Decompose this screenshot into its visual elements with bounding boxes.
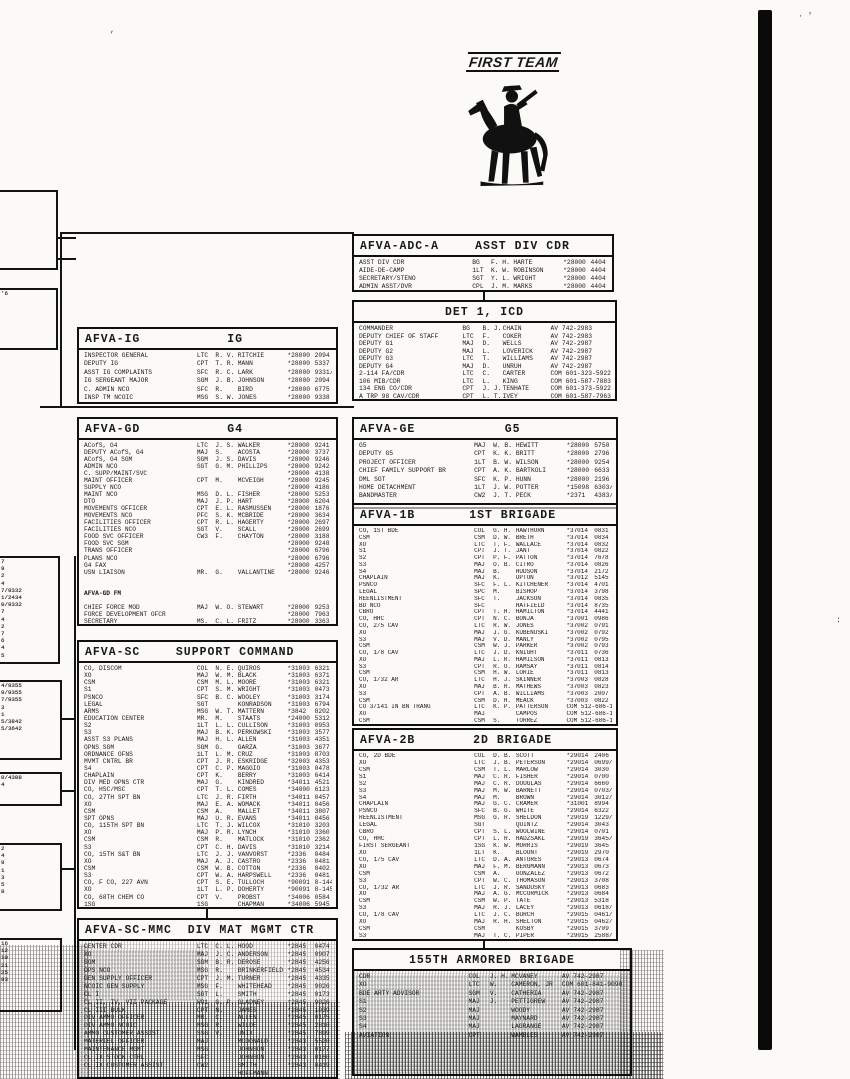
roster-row: XO1LTL. P.DOHERTY*900918-1451 — [84, 886, 332, 893]
roster-cell: JANT — [516, 548, 567, 555]
roster-cell: CITRO — [516, 562, 567, 569]
roster-cell: 4404 — [591, 259, 608, 267]
roster-row: ARMSMSGW. T.MATTERN*38428202 — [84, 708, 332, 715]
roster-cell: AV 742-2987 — [551, 340, 611, 348]
roster-cell: AV 742-2987 — [562, 1015, 626, 1023]
fragment-text-line: 7 — [0, 608, 58, 615]
roster-cell: MAJ — [197, 449, 216, 456]
roster-cell: H. J. — [493, 677, 516, 684]
roster-cell: 2697 — [315, 519, 332, 526]
roster-cell: XO — [84, 858, 197, 865]
roster-cell: MR. — [197, 569, 216, 576]
roster-cell: MEACK — [516, 698, 567, 705]
roster-cell: 3030 — [594, 767, 612, 774]
roster-cell: 134 ENG CO/CDR — [359, 385, 462, 393]
roster-cell: CO, 1ST BDE — [359, 528, 474, 535]
roster-cell: CSM — [359, 898, 474, 905]
roster-cell: PLANS NCO — [84, 555, 197, 562]
roster-cell — [197, 1070, 216, 1078]
roster-row: S3CPTW. C.THOMASON*290133708 — [359, 878, 612, 885]
roster-cell: R. — [215, 967, 237, 975]
roster-row: NCOIC GEN SUPPLYMSGF.WHITEHEAD*28459026 — [84, 983, 332, 991]
roster-cell: PSNCO — [84, 694, 197, 701]
roster-cell: CSM — [84, 836, 197, 843]
cutoff-box-fragment — [0, 190, 58, 270]
roster-cell: *37014 — [566, 555, 594, 562]
roster-cell: *29013 — [566, 885, 594, 892]
roster-cell: XO — [359, 542, 474, 549]
roster-cell: W. — [490, 981, 511, 989]
roster-cell: 2-114 FA/CDR — [359, 370, 462, 378]
roster-row: S1MAJC. R.FISHER*290140700 — [359, 774, 612, 781]
roster-cell: J. G. — [493, 630, 516, 637]
roster-cell: HOME DETACHMENT — [359, 484, 474, 492]
roster-cell: COM 601-841-9090 — [562, 981, 626, 989]
roster-cell: DEPUTY IG — [84, 360, 197, 368]
roster-cell: L. L. — [215, 722, 237, 729]
roster-cell: FIRTH — [238, 794, 288, 801]
roster-cell: CPT — [197, 505, 216, 512]
roster-cell — [493, 603, 516, 610]
roster-cell: MOVEMENTS OFFICER — [84, 505, 197, 512]
fragment-text-line: 2 — [0, 572, 58, 579]
roster-cell: R. L. — [215, 519, 237, 526]
roster-cell: HAGERTY — [238, 519, 288, 526]
roster-cell: 4404 — [591, 267, 608, 275]
roster-cell: GLADNEY — [238, 999, 288, 1007]
roster-cell: *28000 — [287, 377, 314, 385]
roster-cell: *37014 — [566, 582, 594, 589]
roster-cell: BRITT — [516, 450, 567, 458]
roster-row: CSMCSMR.MATLOCK*310102362 — [84, 836, 332, 843]
box-header: AFVA-IGIG — [79, 329, 336, 350]
roster-cell: WELLS — [503, 340, 551, 348]
roster-cell — [215, 611, 237, 618]
roster-cell: ORDNANCE OFNS — [84, 751, 197, 758]
roster-cell: 0683 — [594, 885, 612, 892]
roster-cell: BDE ARTY ADVISOR — [359, 990, 468, 998]
roster-cell: S4 — [359, 795, 474, 802]
roster-cell: S1 — [359, 998, 468, 1006]
box-roster: CO, DISCOMCOLN. E.QUIROS*310036321XOMAJW… — [79, 663, 336, 908]
roster-cell: *28000 — [287, 569, 314, 576]
roster-cell: CHAPLAIN — [84, 772, 197, 779]
roster-cell: *2843 — [287, 1046, 314, 1054]
roster-cell: 4256 — [315, 959, 332, 967]
roster-cell: *31003 — [287, 736, 314, 743]
roster-cell: S4 — [84, 765, 197, 772]
roster-cell — [215, 555, 237, 562]
roster-cell: XO — [359, 760, 474, 767]
roster-cell: T. H. — [493, 609, 516, 616]
roster-cell: *28000 — [287, 369, 314, 377]
roster-cell: BG — [472, 259, 491, 267]
roster-cell: *29015 — [566, 933, 594, 940]
roster-cell: S3 — [359, 788, 474, 795]
roster-cell: KING — [503, 378, 551, 386]
roster-cell: DIV AMMO NCOIC — [84, 1022, 197, 1030]
roster-row: OPS NCOMSGR.BRINKERFIELD*28454534 — [84, 967, 332, 975]
roster-cell: MAJ — [462, 363, 482, 371]
roster-cell: CPT — [197, 772, 216, 779]
roster-cell: 5750 — [594, 442, 612, 450]
roster-cell: 1LT — [197, 886, 216, 893]
roster-cell: *28000 — [287, 456, 314, 463]
roster-cell: QUINTZ — [516, 822, 567, 829]
roster-cell: 0673 — [594, 864, 612, 871]
roster-cell: D. — [482, 363, 502, 371]
roster-cell: 7678 — [594, 555, 612, 562]
box-title: G4 — [140, 423, 330, 436]
roster-cell: SHELDON — [516, 815, 567, 822]
cutoff-box-fragment: 161210212593 — [0, 938, 62, 1012]
roster-cell: C. — [215, 1014, 237, 1022]
roster-cell: J. S. — [215, 442, 237, 449]
roster-cell: XO — [359, 919, 474, 926]
roster-cell: 0814 — [594, 664, 612, 671]
roster-cell: 4383/6106 — [594, 492, 612, 500]
roster-cell: J. M. — [215, 975, 237, 983]
roster-cell: S1 — [84, 686, 197, 693]
roster-cell: WRIGHT — [238, 686, 288, 693]
roster-cell: V. — [215, 1030, 237, 1038]
roster-cell: C. H. — [215, 844, 237, 851]
roster-cell: CSM — [359, 718, 474, 725]
roster-cell: WAMBLES — [511, 1032, 562, 1040]
roster-row: FACILITIES OFFICERCPTR. L.HAGERTY*280002… — [84, 519, 332, 526]
roster-cell: 3798 — [594, 589, 612, 596]
roster-row: S4CPTC. P.MAGGIO*310030478 — [84, 765, 332, 772]
roster-cell: MAJ — [197, 829, 216, 836]
roster-cell: 0813 — [594, 657, 612, 664]
roster-cell: AV 742-2987 — [562, 998, 626, 1006]
roster-cell: 9026 — [315, 999, 332, 1007]
roster-cell: EDUCATION CENTER — [84, 715, 197, 722]
roster-cell: *29014 — [566, 753, 594, 760]
roster-subheader: AFVA-GD FM — [84, 590, 332, 597]
roster-row: CSMCSMW. B.COTTON*23360402 — [84, 865, 332, 872]
roster-cell: STAATS — [238, 715, 288, 722]
roster-cell: CW2 — [474, 492, 493, 500]
org-box-afva-1b: AFVA-1B1ST BRIGADECO, 1ST BDECOLG. H.HAW… — [352, 503, 618, 726]
roster-cell: CPT — [197, 894, 216, 901]
roster-cell: 3709 — [594, 926, 612, 933]
roster-cell: 0618/0620 — [594, 905, 612, 912]
roster-cell: 3677 — [315, 744, 332, 751]
roster-cell: CO, HHC — [359, 836, 474, 843]
roster-row: XOMAJP. R.LYNCH*310103360 — [84, 829, 332, 836]
roster-cell — [197, 555, 216, 562]
org-box-afva-ge: AFVA-GEG5G5MAJW. B.HEWITT*280005750DEPUT… — [352, 417, 618, 509]
roster-cell: TURNER — [238, 975, 288, 983]
roster-cell: POTTER — [516, 484, 567, 492]
roster-cell: R. W. — [493, 623, 516, 630]
roster-cell: MAJ — [474, 933, 493, 940]
roster-cell: 9338 — [315, 394, 332, 402]
roster-row: CO, 115TH SPT BNLTCT. J.WILCOX*310103203 — [84, 822, 332, 829]
roster-cell: DOHERTY — [238, 886, 288, 893]
roster-cell: LTC — [474, 677, 493, 684]
roster-cell: *28000 — [566, 467, 594, 475]
roster-cell: HEWITT — [516, 442, 567, 450]
roster-cell: C. R. — [493, 774, 516, 781]
roster-row: CSMCSMD. H.MEACK*370030822 — [359, 698, 612, 705]
roster-cell: CSM — [197, 836, 216, 843]
roster-cell: CO, 1/5 CAV — [359, 857, 474, 864]
fragment-text-line: 5/3842 — [0, 718, 60, 725]
roster-cell: G. — [215, 569, 237, 576]
roster-cell: 4335 — [315, 975, 332, 983]
fragment-text-line: 4 — [0, 580, 58, 587]
roster-cell: CW3 — [197, 533, 216, 540]
roster-cell — [493, 926, 516, 933]
box-code: AFVA-ADC-A — [360, 240, 439, 253]
roster-cell: *31003 — [287, 686, 314, 693]
roster-row: BDE ARTY ADVISORSGMV.CATHERIAAV 742-2987 — [359, 990, 626, 998]
roster-cell: E. A. — [215, 801, 237, 808]
roster-cell: JOHNSON — [238, 377, 288, 385]
roster-cell: SGM — [197, 456, 216, 463]
roster-cell: *37014 — [566, 535, 594, 542]
roster-cell: 2796 — [594, 450, 612, 458]
box-title: IG — [140, 333, 330, 346]
roster-cell: 3737 — [315, 449, 332, 456]
roster-cell: *37014 — [566, 542, 594, 549]
roster-cell: S2 — [359, 555, 474, 562]
roster-row: CHAPLAINMAJK.UPTON*370125145 — [359, 575, 612, 582]
roster-cell: HAMILSON — [516, 657, 567, 664]
fragment-text-line: 5/3642 — [0, 725, 60, 732]
roster-cell: 0703/4041 — [594, 788, 612, 795]
roster-cell: WILLIAMS — [516, 691, 567, 698]
roster-cell: 1SG — [197, 901, 216, 908]
roster-cell: MAJ — [474, 774, 493, 781]
roster-cell: S3 — [359, 562, 474, 569]
roster-cell: CSM — [197, 679, 216, 686]
roster-cell: SGM — [197, 377, 216, 385]
roster-cell: 6794 — [315, 701, 332, 708]
roster-cell: PSNCO — [359, 582, 474, 589]
roster-cell: MORRIS — [516, 843, 567, 850]
roster-cell: *37014 — [566, 609, 594, 616]
roster-cell — [287, 1070, 314, 1078]
roster-cell: L. R. — [493, 836, 516, 843]
roster-row: PSNCOSFCB. G.WHITE*290146322 — [359, 808, 612, 815]
roster-cell: CSM — [359, 643, 474, 650]
roster-row: CO, 1/8 CAVLTCJ. C.BURCH*290150461/0598 — [359, 912, 612, 919]
roster-cell: 9246 — [315, 569, 332, 576]
roster-row: S3MAJO. B.CITRO*370140826 — [359, 562, 612, 569]
roster-cell: MOVEMENTS NCO — [84, 512, 197, 519]
roster-row: CL ISGTL.SMITH*28450173 — [84, 991, 332, 999]
roster-cell: HAWTHORN — [516, 528, 567, 535]
roster-cell: MANLY — [516, 637, 567, 644]
roster-cell: CO, F CO, 227 AVN — [84, 879, 197, 886]
roster-cell: 1LT — [474, 459, 493, 467]
roster-row: DML SGTSFCK. P.HUNN*280002196 — [359, 476, 612, 484]
roster-cell: SGT — [197, 991, 216, 999]
roster-cell: MSG — [197, 983, 216, 991]
roster-cell: 9245 — [315, 477, 332, 484]
roster-row: XOMAJR. H.SHELTON*290150462/0598 — [359, 919, 612, 926]
roster-cell: S. — [215, 449, 237, 456]
roster-cell: KUBENUSKI — [516, 630, 567, 637]
roster-cell: W. A. — [215, 872, 237, 879]
box-title: SUPPORT COMMAND — [140, 646, 330, 659]
roster-row: AFVA-GD FM — [84, 590, 332, 597]
roster-cell: CSM — [197, 808, 216, 815]
roster-row: S3MAJV. D.MANLY*370020795 — [359, 637, 612, 644]
roster-cell: LTC — [474, 542, 493, 549]
roster-row: CO, 1ST BDECOLG. H.HAWTHORN*370140831 — [359, 528, 612, 535]
roster-row: MAINT OFFICERCPTM.MCVEIGH*280009245 — [84, 477, 332, 484]
roster-cell: 3360 — [315, 829, 332, 836]
roster-cell: TORREZ — [516, 718, 567, 725]
roster-cell: CHAIN — [503, 325, 551, 333]
connector-line — [58, 258, 76, 260]
roster-cell — [197, 562, 216, 569]
roster-row: S4MAJB.HUDSON*370142172 — [359, 569, 612, 576]
roster-cell: MAJ — [197, 858, 216, 865]
roster-cell: RITCHIE — [238, 352, 288, 360]
roster-cell — [238, 555, 288, 562]
roster-cell: BERGMANN — [516, 864, 567, 871]
roster-cell: CHIEF FORCE MOD — [84, 604, 197, 611]
roster-cell: CSM — [474, 670, 493, 677]
box-title: DET 1, ICD — [360, 306, 609, 319]
roster-cell: R. J. — [493, 905, 516, 912]
roster-cell: 8-1451 — [315, 886, 332, 893]
roster-cell: *31010 — [287, 836, 314, 843]
fragment-text-line: 93 — [0, 976, 60, 983]
roster-row: S4MAJLAGRANGEAV 742-2987 — [359, 1023, 626, 1031]
roster-cell: F. H. — [491, 259, 513, 267]
roster-cell: *28000 — [287, 477, 314, 484]
roster-cell: H. L. — [215, 736, 237, 743]
roster-cell: *28000 — [287, 442, 314, 449]
roster-cell — [238, 484, 288, 491]
roster-cell: CPT — [474, 467, 493, 475]
roster-cell: *37001 — [566, 616, 594, 623]
roster-cell: 0481 — [315, 858, 332, 865]
roster-cell: *32003 — [287, 758, 314, 765]
roster-cell: XO — [84, 801, 197, 808]
roster-cell: SKINNER — [516, 677, 567, 684]
box-roster: COMMANDERBGB. J.CHAINAV 742-2983DEPUTY C… — [354, 323, 615, 400]
roster-cell: MARKS — [513, 283, 563, 291]
roster-cell: *31003 — [287, 701, 314, 708]
roster-cell: JONES — [238, 394, 288, 402]
roster-cell: IG SERGEANT MAJOR — [84, 377, 197, 385]
roster-cell: LOVERICK — [503, 348, 551, 356]
roster-cell: FRITZ — [238, 618, 288, 625]
roster-cell: OPNS SGM — [84, 744, 197, 751]
roster-cell: B. C. — [215, 694, 237, 701]
roster-cell: GARZA — [238, 744, 288, 751]
roster-cell: M. — [215, 715, 237, 722]
roster-cell: L. T. — [482, 393, 502, 401]
roster-cell: MCDONALD — [238, 1038, 288, 1046]
roster-cell: CSM — [474, 718, 493, 725]
roster-cell: PROBST — [238, 894, 288, 901]
roster-cell: TRANS OFFICER — [84, 547, 197, 554]
roster-cell: 8735 — [594, 603, 612, 610]
fragment-text-line: 16 — [0, 940, 60, 947]
roster-cell: SPC — [474, 589, 493, 596]
roster-cell: UNRUH — [503, 363, 551, 371]
roster-cell: W. O. — [215, 604, 237, 611]
roster-cell: INSP TM NCOIC — [84, 394, 197, 402]
roster-cell: LEGAL — [84, 701, 197, 708]
roster-row: INSP TM NCOICMSGS. W.JONES*280009338 — [84, 394, 332, 402]
roster-row: CO, HSC/MSCCPTT. L.COMES*340006123 — [84, 786, 332, 793]
roster-cell: C. ADMIN NCO — [84, 386, 197, 394]
roster-cell: COM 601-587-7963 — [551, 393, 611, 401]
roster-cell: 3807 — [315, 808, 332, 815]
roster-cell: FOOD SVC SGM — [84, 540, 197, 547]
roster-cell: K. — [493, 850, 516, 857]
org-box-afva-ig: AFVA-IGIGINSPECTOR GENERALLTCR. V.RITCHI… — [77, 327, 338, 404]
roster-cell: CSM — [359, 535, 474, 542]
roster-cell: MSG — [197, 708, 216, 715]
roster-cell: CSM — [84, 679, 197, 686]
roster-cell: MAJ — [474, 919, 493, 926]
box-header: 155TH ARMORED BRIGADE — [354, 950, 630, 971]
roster-cell: JOHNSON — [238, 1054, 288, 1062]
roster-row: S2MAJC. R.DOUGLAS*290146660 — [359, 781, 612, 788]
roster-cell: HAMILTON — [516, 609, 567, 616]
roster-cell: HUDSON — [516, 569, 567, 576]
roster-cell: AV 742-2987 — [562, 973, 626, 981]
roster-row: CHIEF FORCE MODMAJW. O.STEWART*280009253 — [84, 604, 332, 611]
roster-cell: B. R. — [215, 959, 237, 967]
roster-cell: 5520 — [315, 1038, 332, 1046]
roster-cell: CPT — [197, 519, 216, 526]
roster-cell: J. D. — [493, 650, 516, 657]
roster-cell: DTO — [84, 498, 197, 505]
roster-cell: *34011 — [287, 779, 314, 786]
box-header: AFVA-1B1ST BRIGADE — [354, 505, 616, 526]
roster-cell: AV 742-2983 — [551, 333, 611, 341]
roster-row: S1MAJJ.PETTIGREWAV 742-2987 — [359, 998, 626, 1006]
roster-row: ORDNANCE OFNS1LTL. M.CRUZ*310038703 — [84, 751, 332, 758]
roster-cell: *28000 — [287, 470, 314, 477]
fragment-text-line: 25 — [0, 969, 60, 976]
roster-row: INSPECTOR GENERALLTCR. V.RITCHIE*2800020… — [84, 352, 332, 360]
roster-cell — [215, 1070, 237, 1078]
roster-cell: 8703 — [315, 751, 332, 758]
roster-cell: PHILLIPS — [238, 463, 288, 470]
roster-cell: 5318 — [594, 898, 612, 905]
roster-cell: K. P. — [493, 704, 516, 711]
roster-row: XOLTCT. F.WALLACE*370140832 — [359, 542, 612, 549]
roster-row: SECRETARYMS.C. L.FRITZ*280003363 — [84, 618, 332, 625]
roster-cell: HARTE — [513, 259, 563, 267]
fragment-text-line: 4 — [0, 644, 58, 651]
roster-cell: WILLIAMS — [503, 355, 551, 363]
roster-cell: SGT — [197, 701, 216, 708]
roster-cell: 3203 — [315, 822, 332, 829]
roster-cell: DEROSE — [238, 959, 288, 967]
roster-cell: MAJ — [474, 684, 493, 691]
roster-cell: *29013 — [566, 898, 594, 905]
roster-row: XOMAJB. R.MATHEWS*370030823 — [359, 684, 612, 691]
fragment-text-line: 4 — [0, 781, 60, 788]
roster-cell: UNIX — [238, 1030, 288, 1038]
roster-cell: A. B. — [493, 691, 516, 698]
roster-cell: SMITH — [238, 1062, 288, 1070]
roster-cell: PETERSON — [516, 760, 567, 767]
